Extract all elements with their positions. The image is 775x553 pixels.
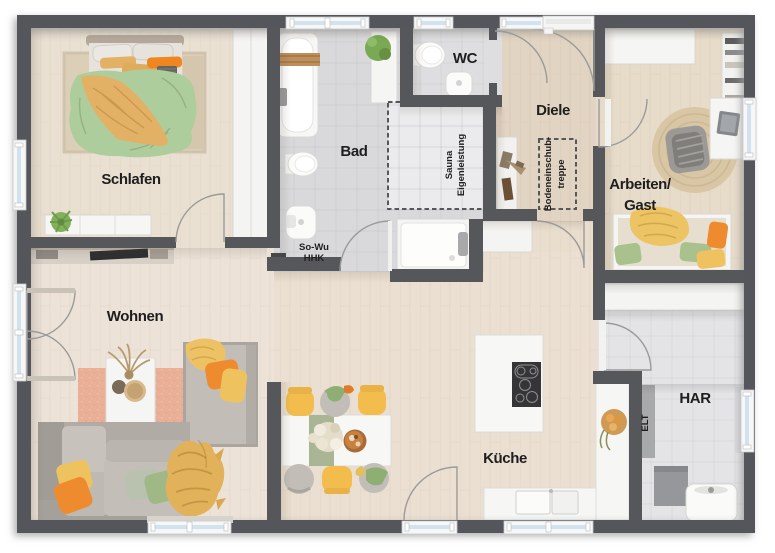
svg-text:So-Wu: So-Wu <box>299 242 329 253</box>
svg-text:WC: WC <box>453 50 478 67</box>
svg-text:HAR: HAR <box>679 390 711 407</box>
svg-text:Gast: Gast <box>624 197 656 214</box>
svg-text:Bad: Bad <box>340 143 367 160</box>
svg-text:Eigenleistung: Eigenleistung <box>456 134 467 196</box>
svg-text:Bodeneinschub-: Bodeneinschub- <box>543 137 554 211</box>
svg-text:Küche: Küche <box>483 450 527 467</box>
svg-text:Schlafen: Schlafen <box>101 171 161 188</box>
svg-text:HHK: HHK <box>304 253 325 264</box>
svg-text:Wohnen: Wohnen <box>107 308 164 325</box>
svg-text:Sauna: Sauna <box>444 150 455 179</box>
svg-text:Arbeiten/: Arbeiten/ <box>609 176 672 193</box>
svg-text:ELT: ELT <box>640 414 651 431</box>
svg-text:treppe: treppe <box>556 159 567 188</box>
svg-text:Diele: Diele <box>536 102 570 119</box>
